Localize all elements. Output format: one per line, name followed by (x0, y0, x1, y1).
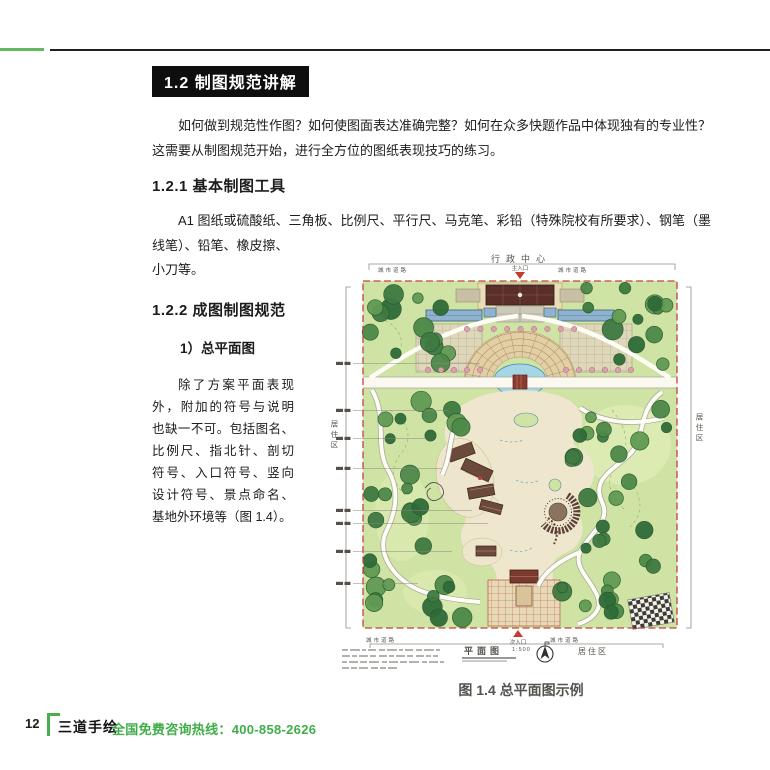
secondary-entrance-arrow-icon (513, 630, 523, 637)
page-number: 12 (25, 716, 39, 731)
intro-line: 这需要从制图规范开始，进行全方位的图纸表现技巧的练习。 (152, 139, 718, 164)
para-line: 比例尺、指北针、剖切 (152, 440, 294, 462)
footer-bracket (47, 713, 60, 716)
footer-hotline: 全国免费咨询热线：400-858-2626 (112, 719, 316, 738)
figure-caption: 图 1.4 总平面图示例 (330, 680, 712, 700)
label-main-entrance: 主入口 (503, 264, 537, 272)
label-plan-scale: 1:500 (512, 647, 531, 653)
label-city-road: 城市道路 (558, 266, 588, 274)
intro-line: 如何做到规范性作图？如何使图面表达准确完整？如何在众多快题作品中体现独有的专业性… (152, 114, 718, 139)
subsection-title-121: 1.2.1 基本制图工具 (152, 175, 286, 196)
section-title: 1.2 制图规范讲解 (152, 66, 309, 97)
para-line: 基地外环境等（图 1.4）。 (152, 506, 294, 528)
para-line: 符号、入口符号、竖向 (152, 462, 294, 484)
label-city-road: 城市道路 (378, 266, 408, 274)
label-residential-bottom: 居住区 (578, 646, 608, 657)
label-secondary-entrance: 次入口 (502, 638, 534, 646)
master-plan-illustration (330, 250, 712, 670)
label-residential-right: 居住区 (694, 413, 705, 445)
para-line: 除了方案平面表现 (152, 374, 294, 396)
master-plan-paragraph: 除了方案平面表现 外，附加的符号与说明 也缺一不可。包括图名、 比例尺、指北针、… (152, 374, 294, 528)
label-city-road: 城市道路 (366, 636, 396, 644)
footer-bracket (47, 713, 50, 736)
para-line: 设计符号、景点命名、 (152, 484, 294, 506)
figure-master-plan: 行政中心 主入口 城市道路 城市道路 城市道路 城市道路 居住区 居住区 次入口… (330, 250, 712, 700)
book-page: 1.2 制图规范讲解 如何做到规范性作图？如何使图面表达准确完整？如何在众多快题… (0, 0, 770, 770)
cross-road (363, 375, 677, 389)
header-rule (50, 49, 770, 51)
para-line: 外，附加的符号与说明 (152, 396, 294, 418)
label-city-road: 城市道路 (550, 636, 580, 644)
main-entrance-arrow-icon (515, 272, 525, 279)
para-line: 也缺一不可。包括图名、 (152, 418, 294, 440)
intro-paragraph: 如何做到规范性作图？如何使图面表达准确完整？如何在众多快题作品中体现独有的专业性… (152, 114, 718, 163)
label-plan-title: 平面图 (464, 644, 503, 657)
subsection-title-122: 1.2.2 成图制图规范 (152, 299, 286, 320)
label-residential-left: 居住区 (329, 420, 340, 452)
item-title-master-plan: 1）总平面图 (180, 337, 255, 357)
accent-rule-green (0, 48, 44, 51)
brand-logo: 三道手绘 (58, 717, 118, 737)
tools-line: A1 图纸或硫酸纸、三角板、比例尺、平行尺、马克笔、彩铅（特殊院校有所要求）、钢… (152, 209, 718, 234)
